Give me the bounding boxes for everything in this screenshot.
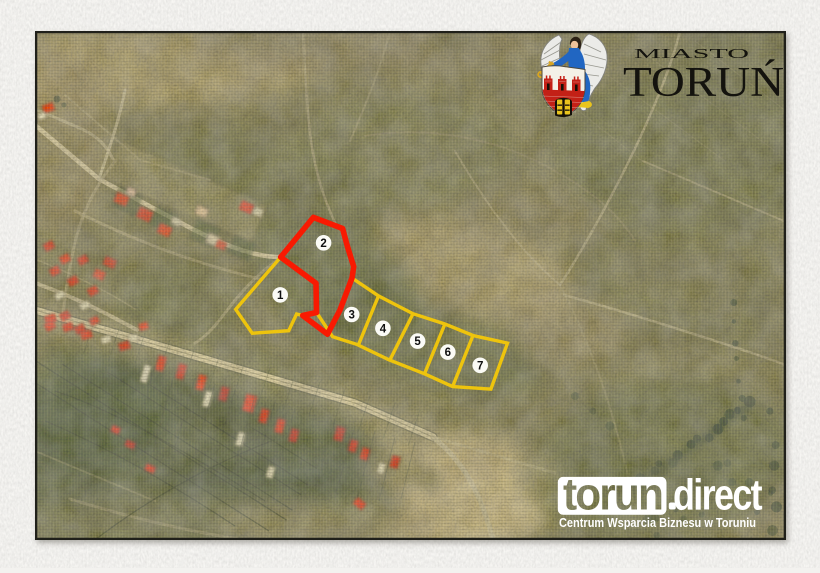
svg-text:1: 1 [277,290,284,302]
svg-text:5: 5 [414,336,421,348]
svg-text:Centrum Wsparcia Biznesu w Tor: Centrum Wsparcia Biznesu w Toruniu [559,516,756,530]
svg-text:direct: direct [673,471,763,520]
svg-text:7: 7 [477,360,483,372]
svg-text:6: 6 [445,347,451,359]
svg-text:3: 3 [348,310,354,322]
svg-text:MIASTO: MIASTO [634,46,750,61]
svg-text:TORUŃ: TORUŃ [623,59,784,106]
svg-text:4: 4 [380,323,387,335]
svg-text:2: 2 [320,238,326,250]
